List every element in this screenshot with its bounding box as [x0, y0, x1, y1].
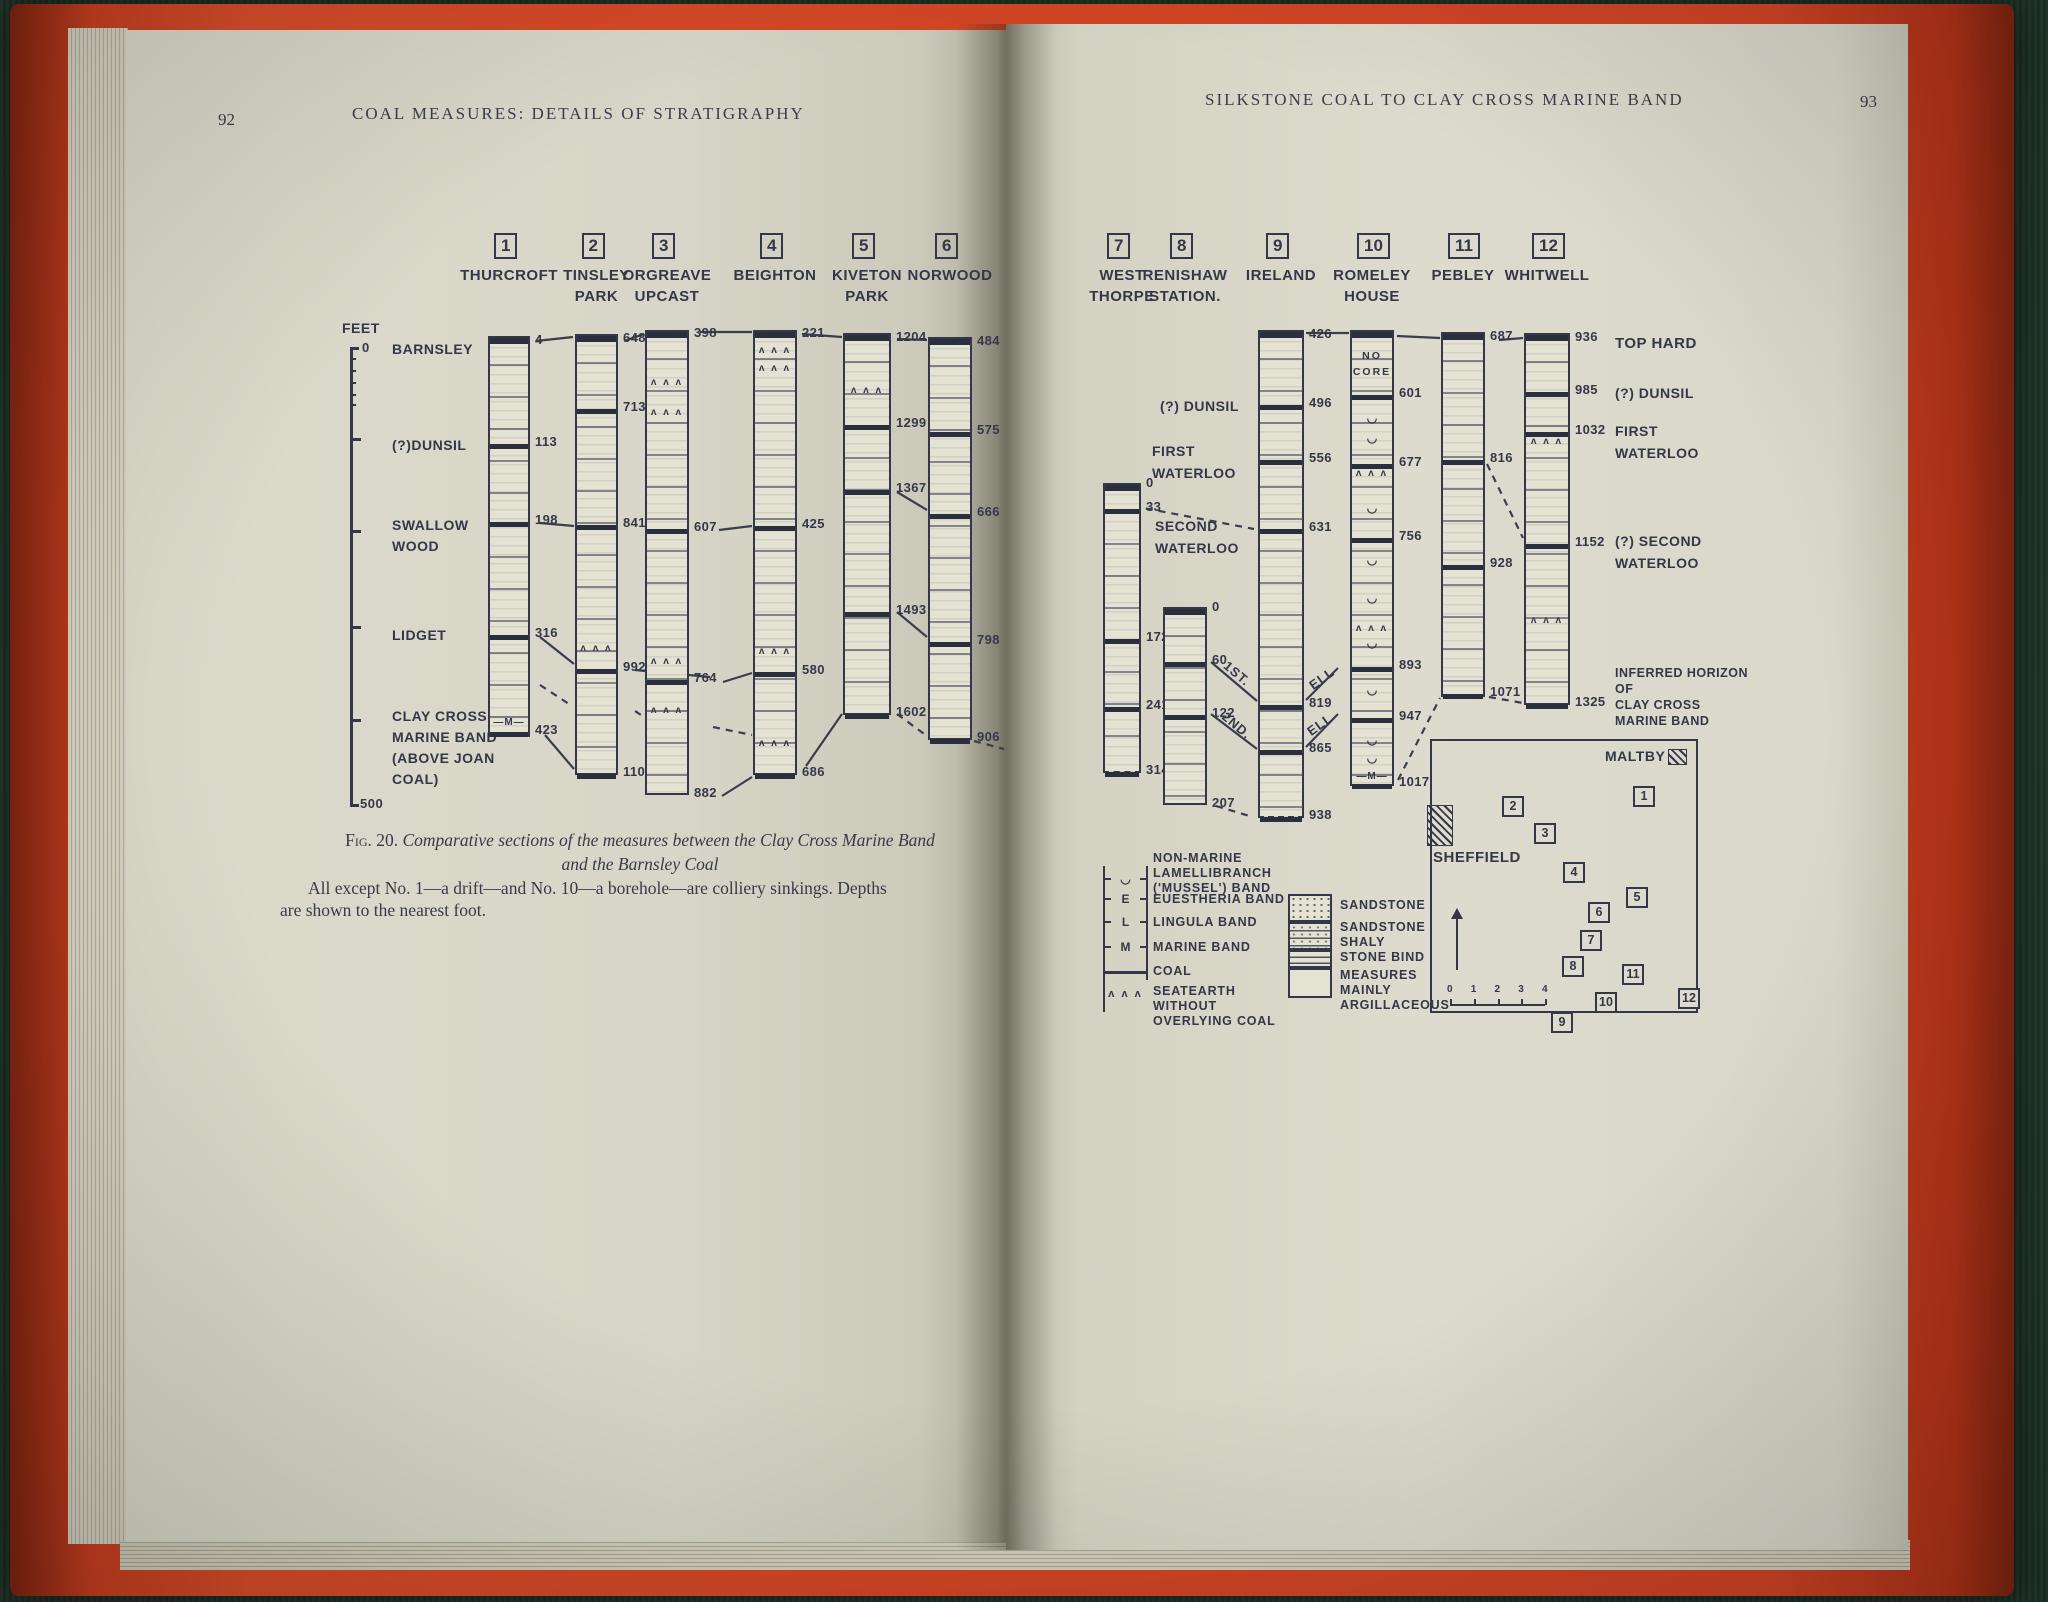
- map-site-10: 10: [1595, 992, 1617, 1013]
- depth-label: 423: [535, 722, 558, 737]
- map-site-7: 7: [1580, 930, 1602, 951]
- seam-label: FIRST: [1152, 443, 1195, 459]
- column-number-box: 7: [1107, 233, 1130, 259]
- coal-band: [930, 339, 970, 345]
- stratum-line: [577, 490, 616, 492]
- axis-seam-label: COAL): [392, 771, 439, 787]
- map-scale-number: 1: [1471, 984, 1477, 995]
- depth-label: 819: [1309, 695, 1332, 710]
- legend-label: NON-MARINE: [1153, 851, 1242, 866]
- stratum-line: [1526, 681, 1568, 683]
- legend-item-tick-l: [1103, 921, 1111, 923]
- stratum-line: [1260, 550, 1302, 552]
- stratum-line: [930, 557, 970, 559]
- coal-band: [577, 409, 616, 414]
- stratum-line: [577, 458, 616, 460]
- stratum-line: [490, 460, 528, 462]
- stratum-line: [1260, 774, 1302, 776]
- seatearth-symbol: ʌ ʌ ʌ: [756, 363, 794, 374]
- axis-seam-label: WOOD: [392, 538, 439, 554]
- stratum-line: [845, 361, 889, 363]
- coal-band: [577, 669, 616, 674]
- coal-band: [1165, 609, 1205, 615]
- stratum-line: [1260, 454, 1302, 456]
- seatearth-symbol: ʌ ʌ ʌ: [1353, 623, 1391, 634]
- coal-band: [845, 714, 889, 719]
- stratum-line: [1260, 358, 1302, 360]
- stratum-line: [930, 397, 970, 399]
- column-name: WHITWELL: [1472, 267, 1622, 284]
- stratum-line: [755, 582, 795, 584]
- correlation-lines: [0, 0, 2048, 1602]
- depth-label: 575: [977, 422, 1000, 437]
- depth-label: 648: [623, 330, 646, 345]
- depth-label: 798: [977, 632, 1000, 647]
- depth-label: 556: [1309, 450, 1332, 465]
- map-scale-tick: [1521, 999, 1523, 1005]
- depth-label: 687: [1490, 328, 1513, 343]
- stratum-line: [647, 614, 687, 616]
- mussel-symbol: ◡: [1355, 751, 1389, 765]
- north-arrow-shaft: [1456, 918, 1458, 970]
- legend-label: MARINE BAND: [1153, 940, 1251, 955]
- stratum-line: [577, 522, 616, 524]
- marine-band-symbol: —M—: [1350, 771, 1394, 782]
- coal-band: [755, 526, 795, 531]
- seam-label: (?) DUNSIL: [1160, 398, 1239, 414]
- coal-band: [1260, 332, 1302, 338]
- seam-label: WATERLOO: [1155, 540, 1239, 556]
- stratum-line: [1526, 425, 1568, 427]
- axis-minor-tick: [350, 404, 356, 406]
- mussel-symbol: ◡: [1355, 501, 1389, 515]
- legend-label: COAL: [1153, 964, 1192, 979]
- coal-band: [1443, 694, 1483, 699]
- stratum-line: [647, 486, 687, 488]
- stratum-line: [1260, 806, 1302, 808]
- legend-coal-line: [1103, 971, 1148, 974]
- axis-minor-tick: [350, 358, 356, 360]
- strat-column-7: [1103, 483, 1141, 773]
- seam-label-right: (?) DUNSIL: [1615, 385, 1694, 401]
- column-name: NORWOOD: [875, 267, 1025, 284]
- legend-label: OVERLYING COAL: [1153, 1014, 1276, 1029]
- stratum-line: [1443, 680, 1483, 682]
- axis-major-tick: [350, 626, 361, 629]
- stratum-line: [490, 620, 528, 622]
- depth-label: 1367: [896, 480, 927, 495]
- axis-minor-tick: [350, 394, 356, 396]
- stratum-line: [1526, 489, 1568, 491]
- coal-band: [1352, 332, 1392, 338]
- depth-label: 316: [535, 625, 558, 640]
- stratum-line: [1260, 742, 1302, 744]
- stratum-line: [577, 394, 616, 396]
- stratum-line: [930, 653, 970, 655]
- marine-band-symbol: —M—: [488, 717, 530, 728]
- stratum-line: [1260, 710, 1302, 712]
- column-number-box: 6: [935, 233, 958, 259]
- stratum-line: [577, 682, 616, 684]
- legend-label: EUESTHERIA BAND: [1153, 892, 1285, 907]
- coal-band: [490, 635, 528, 640]
- depth-label: 221: [802, 325, 825, 340]
- depth-label: 841: [623, 515, 646, 530]
- stratum-line: [1443, 488, 1483, 490]
- map-site-2: 2: [1502, 796, 1524, 817]
- stratum-line: [647, 518, 687, 520]
- coal-band: [930, 739, 970, 744]
- stratum-line: [1526, 553, 1568, 555]
- coal-band: [577, 336, 616, 342]
- stratum-line: [1105, 543, 1139, 545]
- depth-label: 938: [1309, 807, 1332, 822]
- stratum-line: [1260, 422, 1302, 424]
- stratum-line: [930, 685, 970, 687]
- depth-label: 756: [1399, 528, 1422, 543]
- strat-column-2: [575, 334, 618, 775]
- stratum-line: [1526, 585, 1568, 587]
- coal-band: [1443, 460, 1483, 465]
- stratum-line: [930, 429, 970, 431]
- stratum-line: [930, 717, 970, 719]
- column-number-box: 3: [652, 233, 675, 259]
- column-number-box: 1: [494, 233, 517, 259]
- stratum-line: [1443, 424, 1483, 426]
- stratum-line: [1526, 361, 1568, 363]
- stratum-line: [1352, 678, 1392, 680]
- stratum-line: [1165, 731, 1205, 733]
- axis-seam-label: SWALLOW: [392, 517, 469, 533]
- lithology-swatch: [1288, 950, 1332, 968]
- stratum-line: [577, 362, 616, 364]
- seatearth-symbol: ʌ ʌ ʌ: [756, 738, 794, 749]
- axis-seam-label: (?)DUNSIL: [392, 437, 467, 453]
- depth-label: 906: [977, 729, 1000, 744]
- coal-band: [1260, 750, 1302, 755]
- seam-label-right: WATERLOO: [1615, 445, 1699, 461]
- coal-band: [1443, 334, 1483, 340]
- map-site-4: 4: [1563, 862, 1585, 883]
- depth-label: 631: [1309, 519, 1332, 534]
- coal-band: [1352, 718, 1392, 723]
- coal-band: [490, 338, 528, 344]
- stratum-line: [1165, 635, 1205, 637]
- coal-band: [1260, 817, 1302, 822]
- map-scale-tick: [1474, 999, 1476, 1005]
- stratum-line: [1352, 582, 1392, 584]
- depth-label: 1032: [1575, 422, 1606, 437]
- seam-label-right: INFERRED HORIZON: [1615, 666, 1748, 680]
- stratum-line: [755, 710, 795, 712]
- stratum-line: [930, 365, 970, 367]
- depth-label: 1204: [896, 329, 927, 344]
- coal-band: [755, 332, 795, 338]
- stratum-line: [647, 390, 687, 392]
- coal-band: [845, 335, 889, 341]
- stratum-line: [755, 486, 795, 488]
- stratum-line: [1352, 518, 1392, 520]
- stratum-line: [845, 521, 889, 523]
- stratum-line: [930, 621, 970, 623]
- axis-500-label: 500: [360, 796, 383, 811]
- stratum-line: [490, 364, 528, 366]
- depth-label: 666: [977, 504, 1000, 519]
- column-number-box: 5: [852, 233, 875, 259]
- mussel-symbol: ◡: [1355, 591, 1389, 605]
- map-maltby-label: MALTBY: [1605, 748, 1665, 764]
- map-site-9: 9: [1551, 1012, 1573, 1033]
- no-core-line: CORE: [1352, 364, 1392, 380]
- seam-label: WATERLOO: [1152, 465, 1236, 481]
- stratum-line: [490, 492, 528, 494]
- legend-item-tick-r: [1140, 898, 1148, 900]
- stratum-line: [930, 589, 970, 591]
- stratum-line: [1443, 648, 1483, 650]
- map-scale-tick: [1545, 999, 1547, 1005]
- column-number-box: 10: [1357, 233, 1390, 259]
- stratum-line: [755, 550, 795, 552]
- seatearth-symbol: ʌ ʌ ʌ: [648, 705, 686, 716]
- depth-label: 947: [1399, 708, 1422, 723]
- map-sheffield-label: SHEFFIELD: [1433, 849, 1521, 866]
- coal-band: [845, 612, 889, 617]
- depth-label: 1017: [1399, 774, 1430, 789]
- strat-column-4: [753, 330, 797, 775]
- map-scale-tick: [1498, 999, 1500, 1005]
- stratum-line: [577, 618, 616, 620]
- stratum-line: [577, 714, 616, 716]
- depth-label: 1299: [896, 415, 927, 430]
- stratum-line: [1260, 582, 1302, 584]
- lithology-swatch: [1288, 922, 1332, 950]
- axis-minor-tick: [350, 370, 356, 372]
- stratum-line: [490, 428, 528, 430]
- map-site-8: 8: [1562, 956, 1584, 977]
- map-scale-tick: [1450, 999, 1452, 1005]
- stratum-line: [490, 396, 528, 398]
- no-core-label: NOCORE: [1352, 348, 1392, 380]
- coal-band: [755, 774, 795, 779]
- mussel-symbol: ◡: [1355, 733, 1389, 747]
- legend-label: LINGULA BAND: [1153, 915, 1257, 930]
- strat-column-11: [1441, 332, 1485, 697]
- stratum-line: [1443, 552, 1483, 554]
- axis-seam-label: MARINE BAND: [392, 729, 497, 745]
- coal-band: [845, 425, 889, 430]
- depth-label: 425: [802, 516, 825, 531]
- stratum-line: [755, 518, 795, 520]
- map-site-1: 1: [1633, 786, 1655, 807]
- coal-band: [577, 774, 616, 779]
- stratum-line: [577, 554, 616, 556]
- depth-label: 1493: [896, 602, 927, 617]
- stratum-line: [1105, 671, 1139, 673]
- stratum-line: [845, 617, 889, 619]
- legend-item-tick-l: [1103, 878, 1111, 880]
- lithology-swatch: [1288, 968, 1332, 998]
- stratum-line: [1165, 667, 1205, 669]
- seam-label-right: OF: [1615, 682, 1633, 696]
- seatearth-symbol: ʌ ʌ ʌ: [1527, 615, 1567, 626]
- stratum-line: [1352, 454, 1392, 456]
- stratum-line: [577, 426, 616, 428]
- depth-label: 1071: [1490, 684, 1521, 699]
- coal-band: [1105, 485, 1139, 491]
- depth-label: 113: [535, 434, 557, 449]
- depth-label: 936: [1575, 329, 1598, 344]
- seam-label-right: TOP HARD: [1615, 335, 1697, 352]
- axis-major-tick: [350, 719, 361, 722]
- stratum-line: [647, 358, 687, 360]
- legend-band-symbol: M: [1113, 940, 1138, 954]
- depth-label: 713: [623, 399, 646, 414]
- legend-item-tick-l: [1103, 946, 1111, 948]
- depth-label: 33: [1146, 499, 1161, 514]
- stratum-line: [490, 684, 528, 686]
- legend-label: SANDSTONE: [1340, 920, 1425, 935]
- coal-band: [1105, 639, 1139, 644]
- north-arrow-head: [1451, 908, 1463, 919]
- coal-band: [1105, 509, 1139, 514]
- stratum-line: [930, 493, 970, 495]
- depth-label: 0: [1212, 599, 1220, 614]
- map-site-3: 3: [1534, 823, 1556, 844]
- depth-label: 764: [694, 670, 717, 685]
- stratum-line: [577, 746, 616, 748]
- depth-label: 686: [802, 764, 825, 779]
- map-scale-number: 2: [1495, 984, 1501, 995]
- seam-label-right: (?) SECOND: [1615, 533, 1702, 549]
- column-number-box: 8: [1170, 233, 1193, 259]
- coal-band: [1260, 405, 1302, 410]
- stratum-line: [490, 652, 528, 654]
- stratum-line: [1443, 392, 1483, 394]
- mussel-symbol: ◡: [1355, 636, 1389, 650]
- coal-band: [1526, 704, 1568, 709]
- depth-label: 484: [977, 333, 1000, 348]
- stratum-line: [845, 649, 889, 651]
- map-site-6: 6: [1588, 902, 1610, 923]
- column-name: STATION.: [1110, 288, 1260, 305]
- coal-band: [1352, 538, 1392, 543]
- stratum-line: [1443, 616, 1483, 618]
- coal-band: [577, 525, 616, 530]
- photo-of-open-book: 92 COAL MEASURES: DETAILS OF STRATIGRAPH…: [0, 0, 2048, 1602]
- strat-column-3: [645, 330, 689, 795]
- map-maltby-hatch: [1668, 749, 1687, 765]
- stratum-line: [1260, 646, 1302, 648]
- stratum-line: [490, 556, 528, 558]
- legend-label: MAINLY: [1340, 983, 1392, 998]
- coal-band: [845, 490, 889, 495]
- seam-label-right: CLAY CROSS: [1615, 698, 1701, 712]
- column-name: HOUSE: [1297, 288, 1447, 305]
- depth-label: 207: [1212, 795, 1235, 810]
- axis-minor-tick: [350, 382, 356, 384]
- depth-label: 580: [802, 662, 825, 677]
- mussel-symbol: ◡: [1355, 683, 1389, 697]
- stratum-line: [647, 582, 687, 584]
- stratum-line: [1526, 521, 1568, 523]
- depth-label: 607: [694, 519, 717, 534]
- stratum-line: [1105, 735, 1139, 737]
- stratum-line: [1352, 550, 1392, 552]
- stratum-line: [1260, 518, 1302, 520]
- stratum-line: [1260, 678, 1302, 680]
- seatearth-symbol: ʌ ʌ ʌ: [756, 345, 794, 356]
- seatearth-symbol: ʌ ʌ ʌ: [846, 385, 888, 396]
- legend-label: LAMELLIBRANCH: [1153, 866, 1272, 881]
- column-name: PARK: [792, 288, 942, 305]
- stratum-line: [1443, 520, 1483, 522]
- depth-label: 1602: [896, 704, 927, 719]
- depth-label: 893: [1399, 657, 1422, 672]
- stratum-line: [845, 457, 889, 459]
- stratum-line: [1105, 607, 1139, 609]
- stratum-line: [755, 678, 795, 680]
- legend-item-tick-l: [1103, 898, 1111, 900]
- mussel-symbol: ◡: [1355, 431, 1389, 445]
- column-number-box: 9: [1266, 233, 1289, 259]
- map-sheffield-hatch: [1427, 805, 1453, 846]
- legend-label: SEATEARTH: [1153, 984, 1236, 999]
- legend-item-tick-r: [1140, 921, 1148, 923]
- legend-label: MEASURES: [1340, 968, 1417, 983]
- axis-bottom-tick: [350, 804, 359, 807]
- strat-column-1: [488, 336, 530, 737]
- seatearth-symbol: ʌ ʌ ʌ: [648, 407, 686, 418]
- map-scale-number: 3: [1518, 984, 1524, 995]
- seatearth-symbol: ʌ ʌ ʌ: [648, 656, 686, 667]
- stratum-line: [1352, 710, 1392, 712]
- stratum-line: [577, 586, 616, 588]
- axis-major-tick: [350, 438, 361, 441]
- stratum-line: [1443, 360, 1483, 362]
- stratum-line: [647, 550, 687, 552]
- seatearth-symbol: ʌ ʌ ʌ: [756, 646, 794, 657]
- stratum-line: [755, 358, 795, 360]
- seam-label-right: MARINE BAND: [1615, 714, 1709, 728]
- coal-band: [1443, 565, 1483, 570]
- column-number-box: 11: [1448, 233, 1480, 259]
- stratum-line: [1526, 457, 1568, 459]
- stratum-line: [845, 553, 889, 555]
- legend-bracket-right: [1146, 866, 1148, 980]
- coal-band: [1165, 662, 1205, 667]
- map-site-11: 11: [1622, 964, 1644, 985]
- coal-band: [1105, 772, 1139, 777]
- lithology-swatch: [1288, 894, 1332, 922]
- axis-major-tick: [350, 530, 361, 533]
- stratum-line: [1260, 486, 1302, 488]
- coal-band: [490, 732, 528, 737]
- legend-label: SHALY: [1340, 935, 1385, 950]
- stratum-line: [1443, 456, 1483, 458]
- coal-band: [490, 444, 528, 449]
- no-core-line: NO: [1352, 348, 1392, 364]
- stratum-line: [1526, 649, 1568, 651]
- legend-label: STONE BIND: [1340, 950, 1425, 965]
- strat-column-12: [1524, 333, 1570, 705]
- depth-label: 601: [1399, 385, 1422, 400]
- stratum-line: [755, 390, 795, 392]
- stratum-line: [647, 422, 687, 424]
- coal-band: [930, 432, 970, 437]
- depth-label: 398: [694, 325, 717, 340]
- coal-band: [930, 642, 970, 647]
- axis-seam-label: LIDGET: [392, 627, 446, 643]
